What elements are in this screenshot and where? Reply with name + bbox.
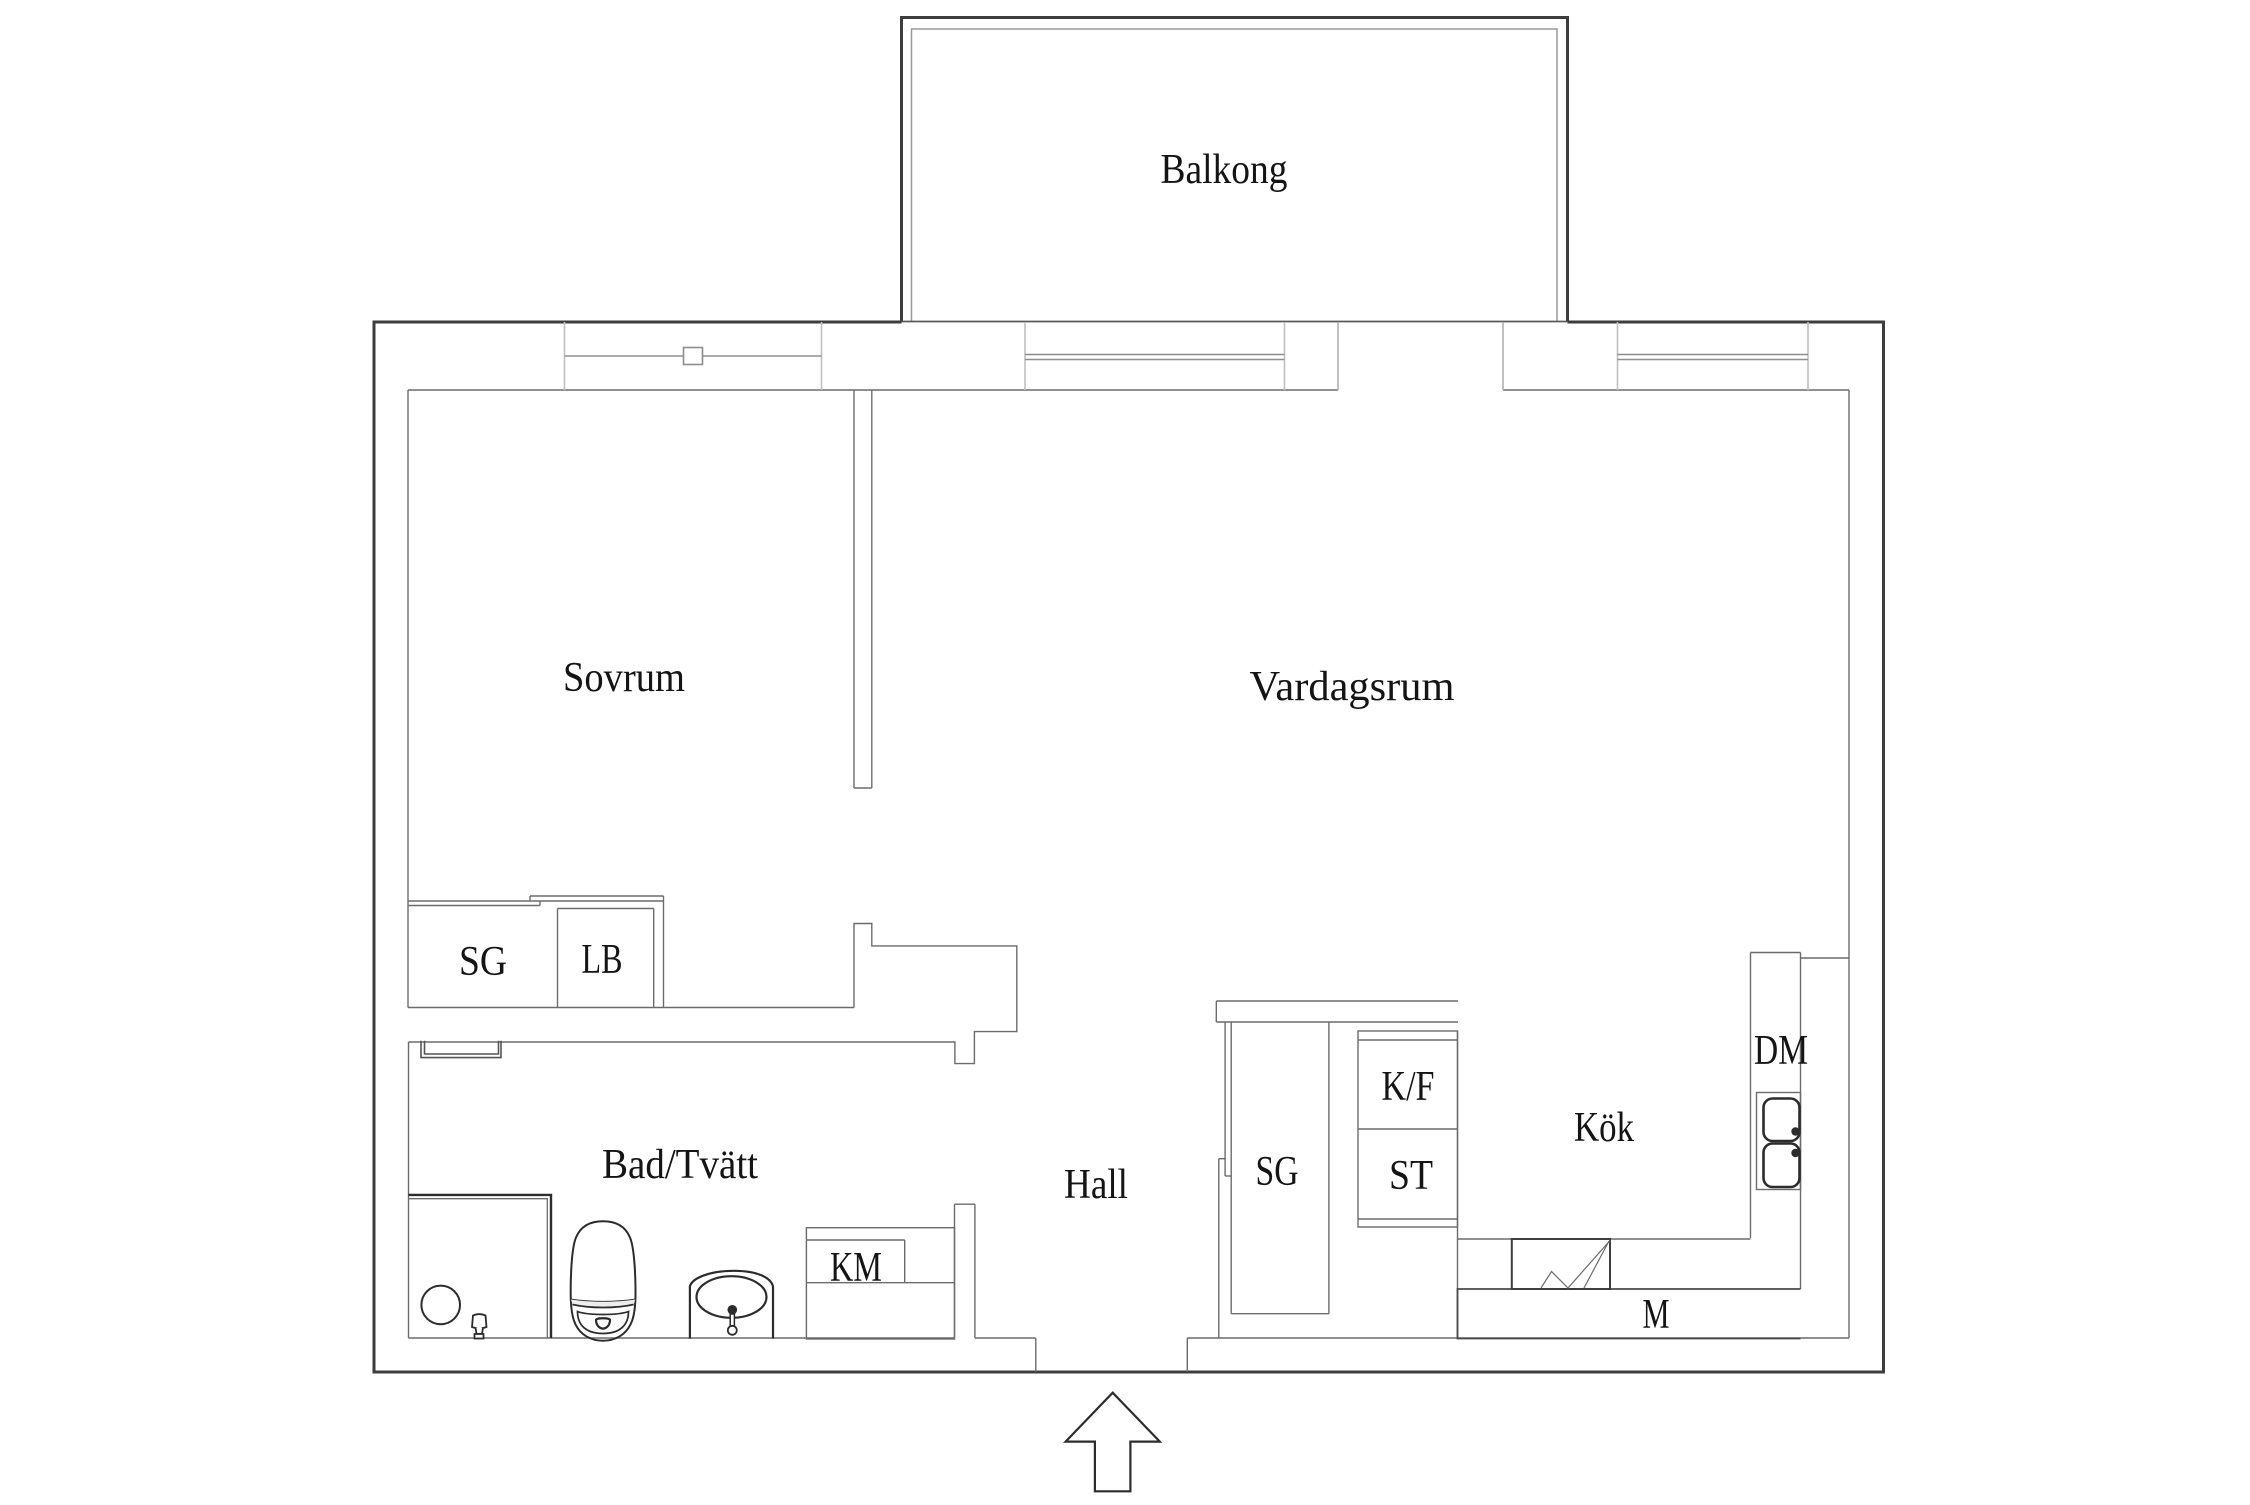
svg-text:Hall: Hall xyxy=(1064,1162,1128,1208)
svg-text:Sovrum: Sovrum xyxy=(563,655,685,701)
svg-text:SG: SG xyxy=(459,939,507,985)
svg-text:M: M xyxy=(1643,1292,1670,1338)
svg-text:ST: ST xyxy=(1389,1153,1433,1199)
svg-text:Kök: Kök xyxy=(1574,1105,1634,1151)
svg-text:DM: DM xyxy=(1754,1028,1808,1074)
svg-text:Bad/Tvätt: Bad/Tvätt xyxy=(602,1142,758,1188)
svg-text:Balkong: Balkong xyxy=(1161,147,1288,193)
svg-text:SG: SG xyxy=(1256,1149,1299,1195)
svg-text:Vardagsrum: Vardagsrum xyxy=(1250,664,1455,710)
svg-text:KM: KM xyxy=(830,1245,882,1291)
svg-text:K/F: K/F xyxy=(1382,1064,1435,1110)
svg-text:LB: LB xyxy=(582,937,623,983)
